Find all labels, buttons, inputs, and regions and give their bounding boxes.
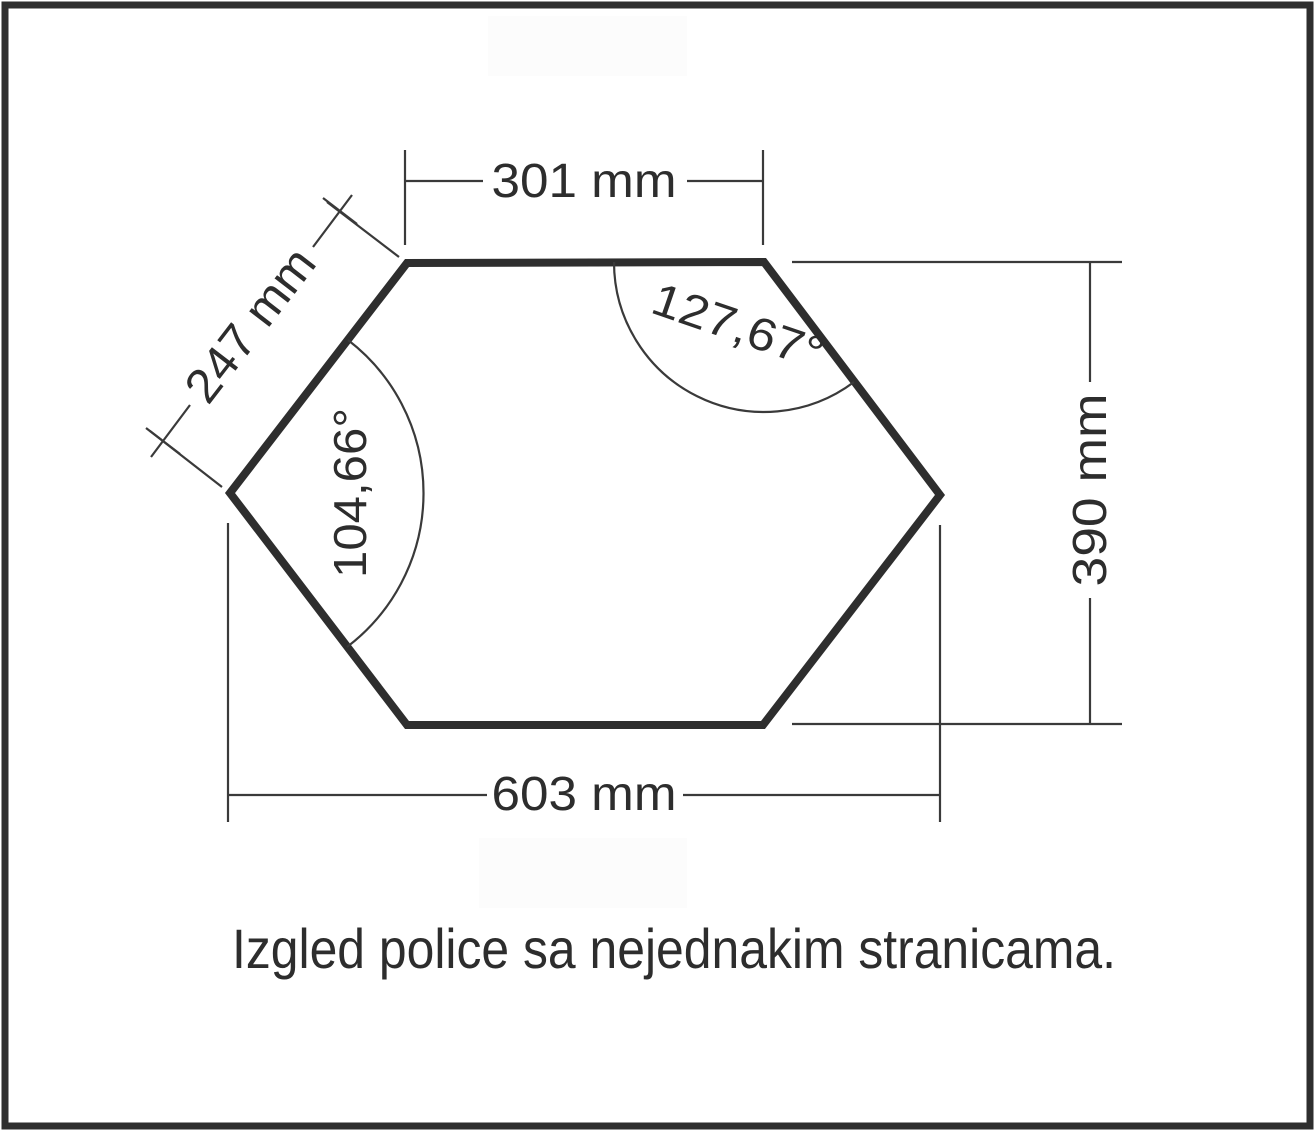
dim-603-label: 603 mm (492, 768, 677, 821)
watermark-bottom (479, 838, 687, 908)
angle-127-label: 127,67° (646, 272, 831, 379)
caption-text: Izgled police sa nejednakim stranicama. (232, 917, 1116, 980)
shelf-dimension-diagram: 301 mm 247 mm 603 mm 390 mm (0, 0, 1315, 1132)
dim-390-label: 390 mm (1064, 394, 1117, 587)
technical-drawing-page: 301 mm 247 mm 603 mm 390 mm (0, 0, 1315, 1132)
dim-247-label: 247 mm (175, 238, 327, 413)
dim-301-label: 301 mm (492, 155, 677, 208)
angle-104-label: 104,66° (324, 408, 376, 578)
watermark-top (488, 16, 687, 76)
